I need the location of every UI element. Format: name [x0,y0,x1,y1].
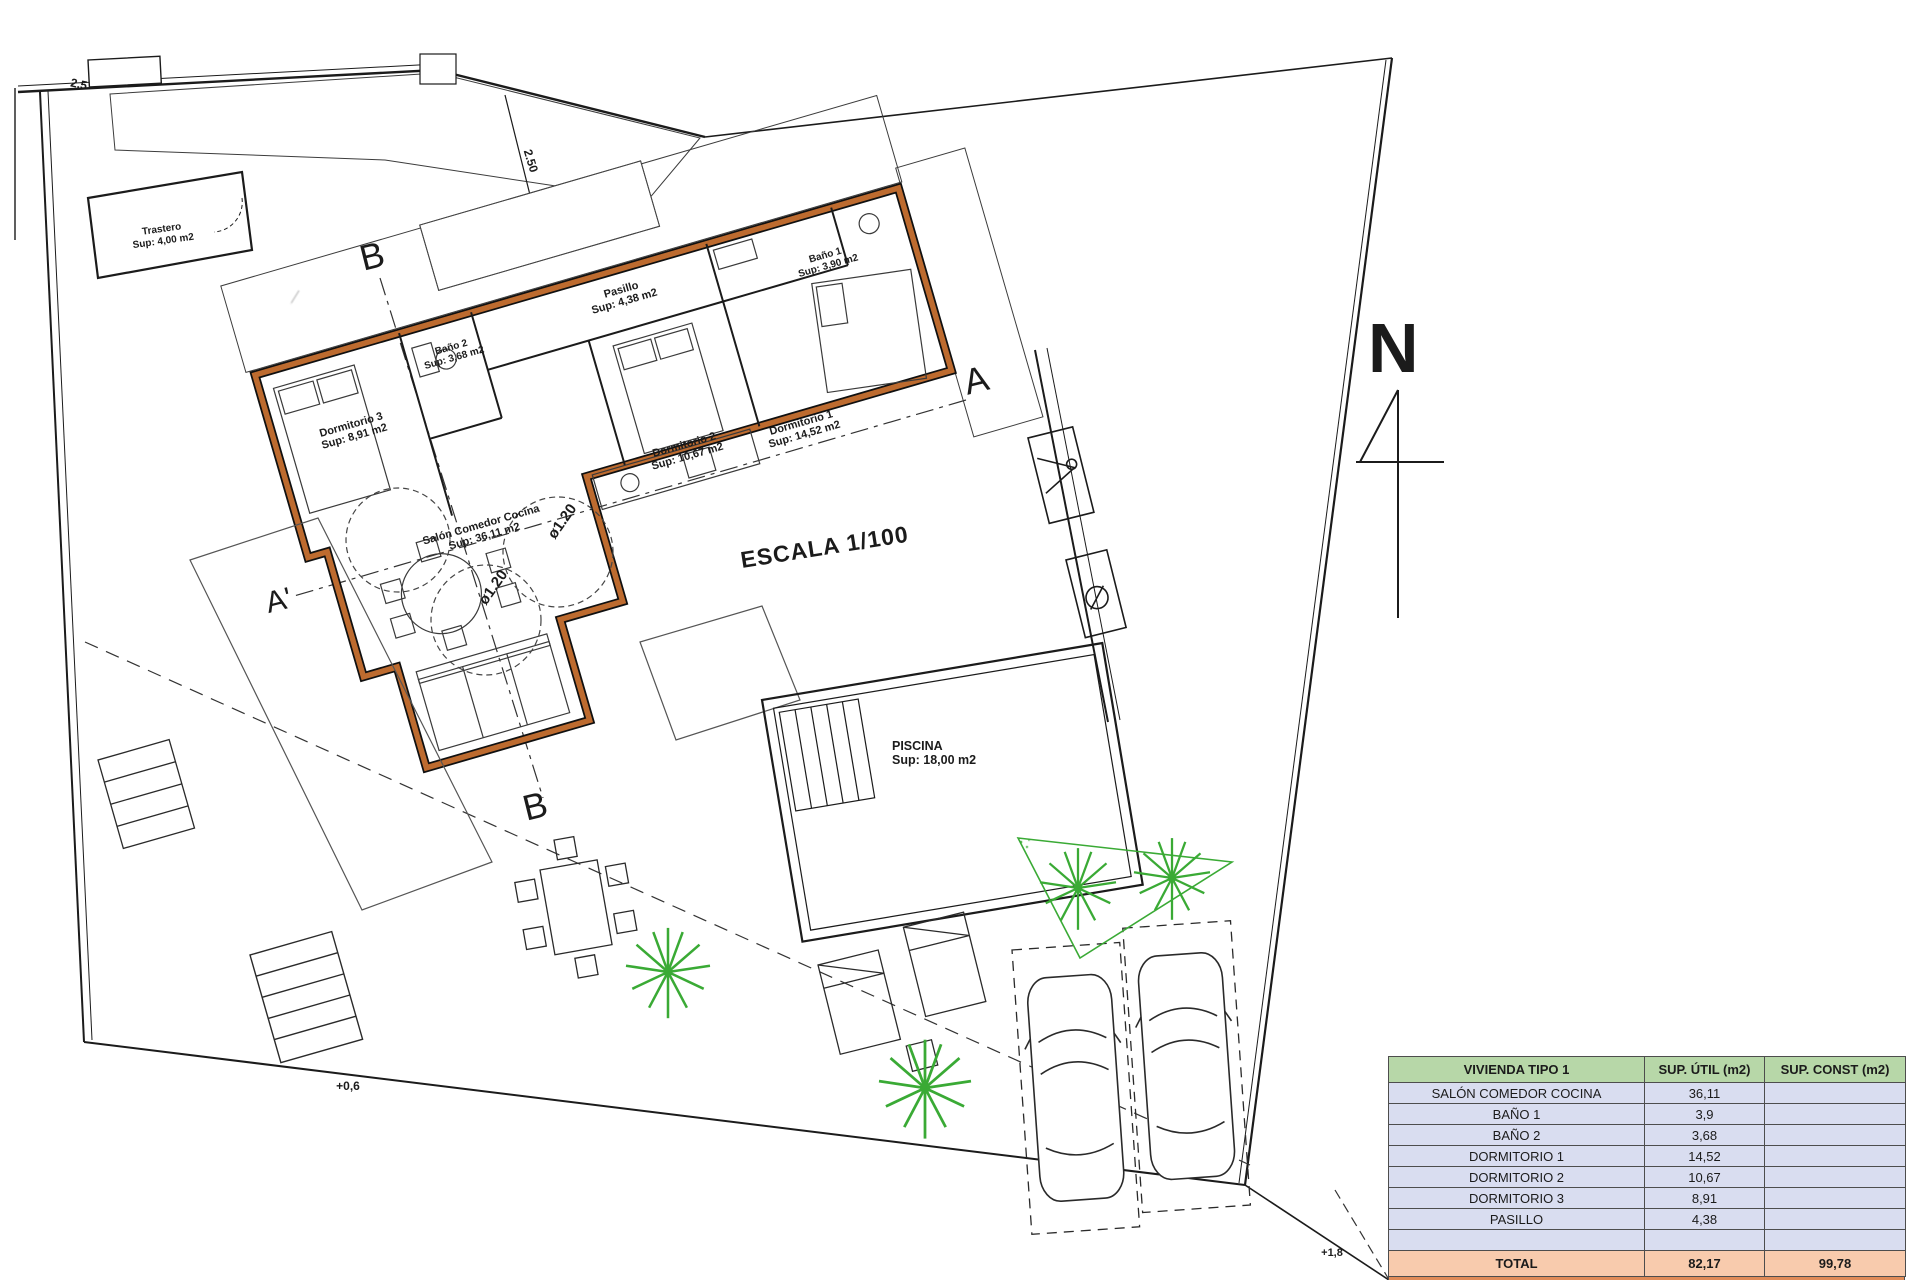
table-cell [1765,1188,1906,1209]
table-cell: DORMITORIO 3 [1389,1188,1645,1209]
table-cell: BAÑO 2 [1389,1125,1645,1146]
table-cell: SALÓN COMEDOR COCINA [1389,1083,1645,1104]
boundary-post [420,54,456,84]
table-cell [1765,1125,1906,1146]
table-cell: 36,11 [1645,1083,1765,1104]
table-total-util: 82,17 [1645,1251,1765,1277]
north-arrow-icon [1356,390,1444,618]
section-b-bottom-label: B [518,783,551,829]
table-header-name: VIVIENDA TIPO 1 [1389,1057,1645,1083]
table-cell [1389,1230,1645,1251]
table-row: DORMITORIO 2 10,67 [1389,1167,1906,1188]
terrace-tiles [190,518,492,910]
table-cell: PASILLO [1389,1209,1645,1230]
table-cell: 4,38 [1645,1209,1765,1230]
table-cell: 14,52 [1645,1146,1765,1167]
table-row: DORMITORIO 3 8,91 [1389,1188,1906,1209]
table-header-util: SUP. ÚTIL (m2) [1645,1057,1765,1083]
floor-plan-sheet: N TrasteroSup: 4,00 m2 PasilloSup: 4,38 … [0,0,1920,1280]
table-cell: DORMITORIO 2 [1389,1167,1645,1188]
table-cell: BAÑO 1 [1389,1104,1645,1125]
pasillo-label: PasilloSup: 4,38 m2 [587,275,659,317]
level-plus18-label: +1,8 [1321,1247,1343,1259]
table-row: SALÓN COMEDOR COCINA 36,11 [1389,1083,1906,1104]
utility-boxes [1028,348,1126,722]
area-table: VIVIENDA TIPO 1 SUP. ÚTIL (m2) SUP. CONS… [1388,1056,1905,1280]
table-cell [1765,1167,1906,1188]
planting-bed [1018,838,1232,958]
table-header-const: SUP. CONST (m2) [1765,1057,1906,1083]
table-total-row: TOTAL 82,17 99,78 [1389,1251,1906,1277]
north-label: N [1368,309,1419,387]
table-cell: 3,9 [1645,1104,1765,1125]
level-plus06-label: +0,6 [336,1079,360,1093]
table-cell [1765,1083,1906,1104]
table-cell: 3,68 [1645,1125,1765,1146]
table-cell [1765,1104,1906,1125]
trastero-label: TrasteroSup: 4,00 m2 [130,220,195,251]
table-total-name: TOTAL [1389,1251,1645,1277]
table-cell [1645,1230,1765,1251]
neighbour-building [88,56,161,87]
escala-label: ESCALA 1/100 [739,521,911,573]
table-row: BAÑO 2 3,68 [1389,1125,1906,1146]
piscina-label: PISCINASup: 18,00 m2 [892,739,976,767]
table-header-row: VIVIENDA TIPO 1 SUP. ÚTIL (m2) SUP. CONS… [1389,1057,1906,1083]
table-cell [1765,1230,1906,1251]
table-row: DORMITORIO 1 14,52 [1389,1146,1906,1167]
table-cell [1765,1146,1906,1167]
side-steps [98,740,194,849]
table-total-const: 99,78 [1765,1251,1906,1277]
sun-loungers [814,912,998,1087]
bano1-label: Baño 1Sup: 3,90 m2 [794,242,860,280]
table-cell: DORMITORIO 1 [1389,1146,1645,1167]
table-cell [1765,1209,1906,1230]
outdoor-dining-set [509,829,644,986]
table-row: BAÑO 1 3,9 [1389,1104,1906,1125]
stairs [250,932,363,1063]
table-cell: 8,91 [1645,1188,1765,1209]
table-cell: 10,67 [1645,1167,1765,1188]
parking [1011,921,1251,1235]
table-row-empty [1389,1230,1906,1251]
table-row: PASILLO 4,38 [1389,1209,1906,1230]
